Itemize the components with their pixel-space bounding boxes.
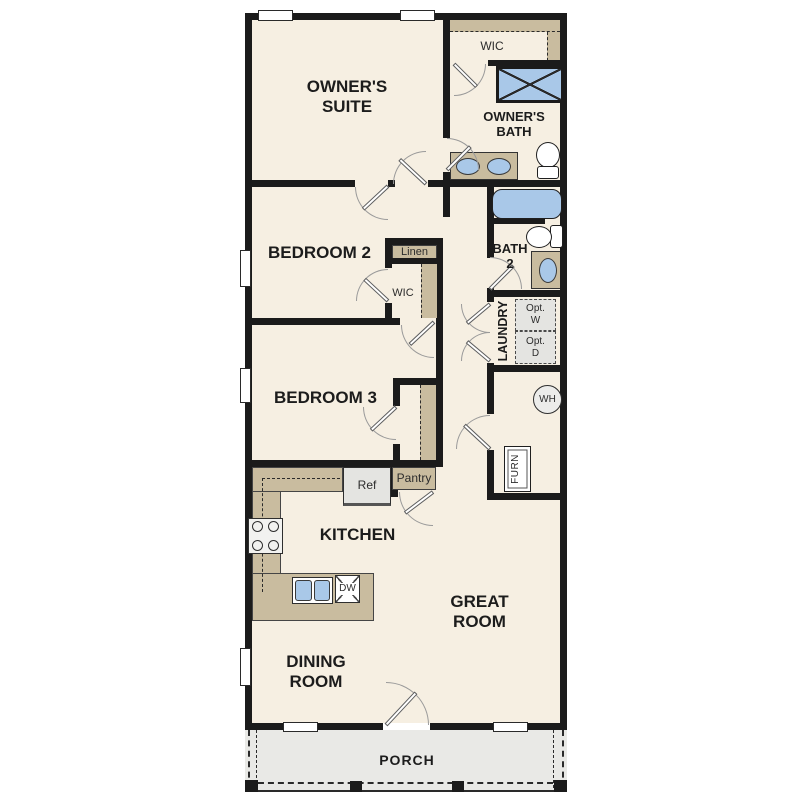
wall [385, 238, 443, 245]
great-room-label: GREAT ROOM [427, 592, 532, 632]
bedroom2-label: BEDROOM 2 [252, 243, 387, 263]
kitchen-counter [252, 467, 343, 492]
wall [245, 460, 443, 467]
window [258, 10, 293, 21]
porch-label: PORCH [375, 752, 439, 769]
dishwasher-label: DW [338, 583, 357, 595]
fridge-label: Ref [358, 478, 377, 492]
fridge-icon: Ref [343, 467, 391, 506]
porch-edge-bottom [248, 782, 563, 784]
bath2-label: BATH 2 [489, 241, 531, 272]
pantry-label: Pantry [392, 471, 436, 485]
wall [245, 318, 400, 325]
owners-suite-label: OWNER'S SUITE [262, 77, 432, 117]
closet-shelf [421, 264, 437, 318]
shower-icon [496, 66, 564, 103]
dining-room-label: DINING ROOM [260, 652, 372, 692]
kitchen-label: KITCHEN [300, 525, 415, 545]
wall [443, 13, 450, 138]
porch-outline [245, 790, 567, 792]
wall [393, 444, 400, 467]
wall [487, 493, 567, 500]
burner-icon [268, 521, 279, 532]
wall [428, 180, 450, 187]
bedroom2-wic-label: WIC [383, 287, 423, 300]
sink-icon [539, 258, 557, 283]
dryer-option-box: Opt. D [515, 331, 556, 364]
washer-option-box: Opt. W [515, 299, 556, 331]
laundry-label: LAUNDRY [496, 296, 510, 366]
window [240, 648, 251, 686]
wall [443, 180, 567, 187]
owners-bath-label: OWNER'S BATH [468, 109, 560, 140]
wall [487, 365, 567, 372]
toilet-tank [537, 166, 559, 179]
wall [443, 187, 450, 217]
toilet-icon [536, 142, 560, 168]
linen-label: Linen [392, 246, 437, 258]
burner-icon [252, 540, 263, 551]
burner-icon [268, 540, 279, 551]
window [283, 722, 318, 732]
bedroom3-label: BEDROOM 3 [258, 388, 393, 408]
window [240, 250, 251, 287]
cabinet-dashed-line [262, 478, 340, 479]
porch-post [452, 781, 464, 792]
sink-basin [295, 580, 312, 601]
wall [437, 238, 443, 325]
window [240, 368, 251, 403]
window [400, 10, 435, 21]
water-heater-label: WH [539, 394, 556, 406]
window [493, 722, 528, 732]
porch-post [350, 781, 362, 792]
wall [393, 378, 400, 406]
porch-post [554, 780, 567, 792]
burner-icon [252, 521, 263, 532]
wall [436, 318, 443, 467]
water-heater-icon: WH [533, 385, 562, 414]
wall [393, 378, 443, 385]
dishwasher-icon: DW [335, 575, 360, 603]
furnace-label: FURN [510, 447, 524, 491]
bathtub-icon [492, 189, 562, 219]
sink-basin [314, 580, 330, 601]
closet-shelf [420, 385, 436, 460]
owner-wic-label: WIC [470, 39, 514, 53]
porch-post [245, 780, 258, 792]
wall [385, 303, 392, 325]
wall [385, 258, 443, 264]
floor-plan: Opt. W Opt. D WH FURN Ref DW [0, 0, 810, 810]
sink-icon [487, 158, 511, 175]
wall [245, 180, 355, 187]
closet-shelf [450, 20, 560, 32]
